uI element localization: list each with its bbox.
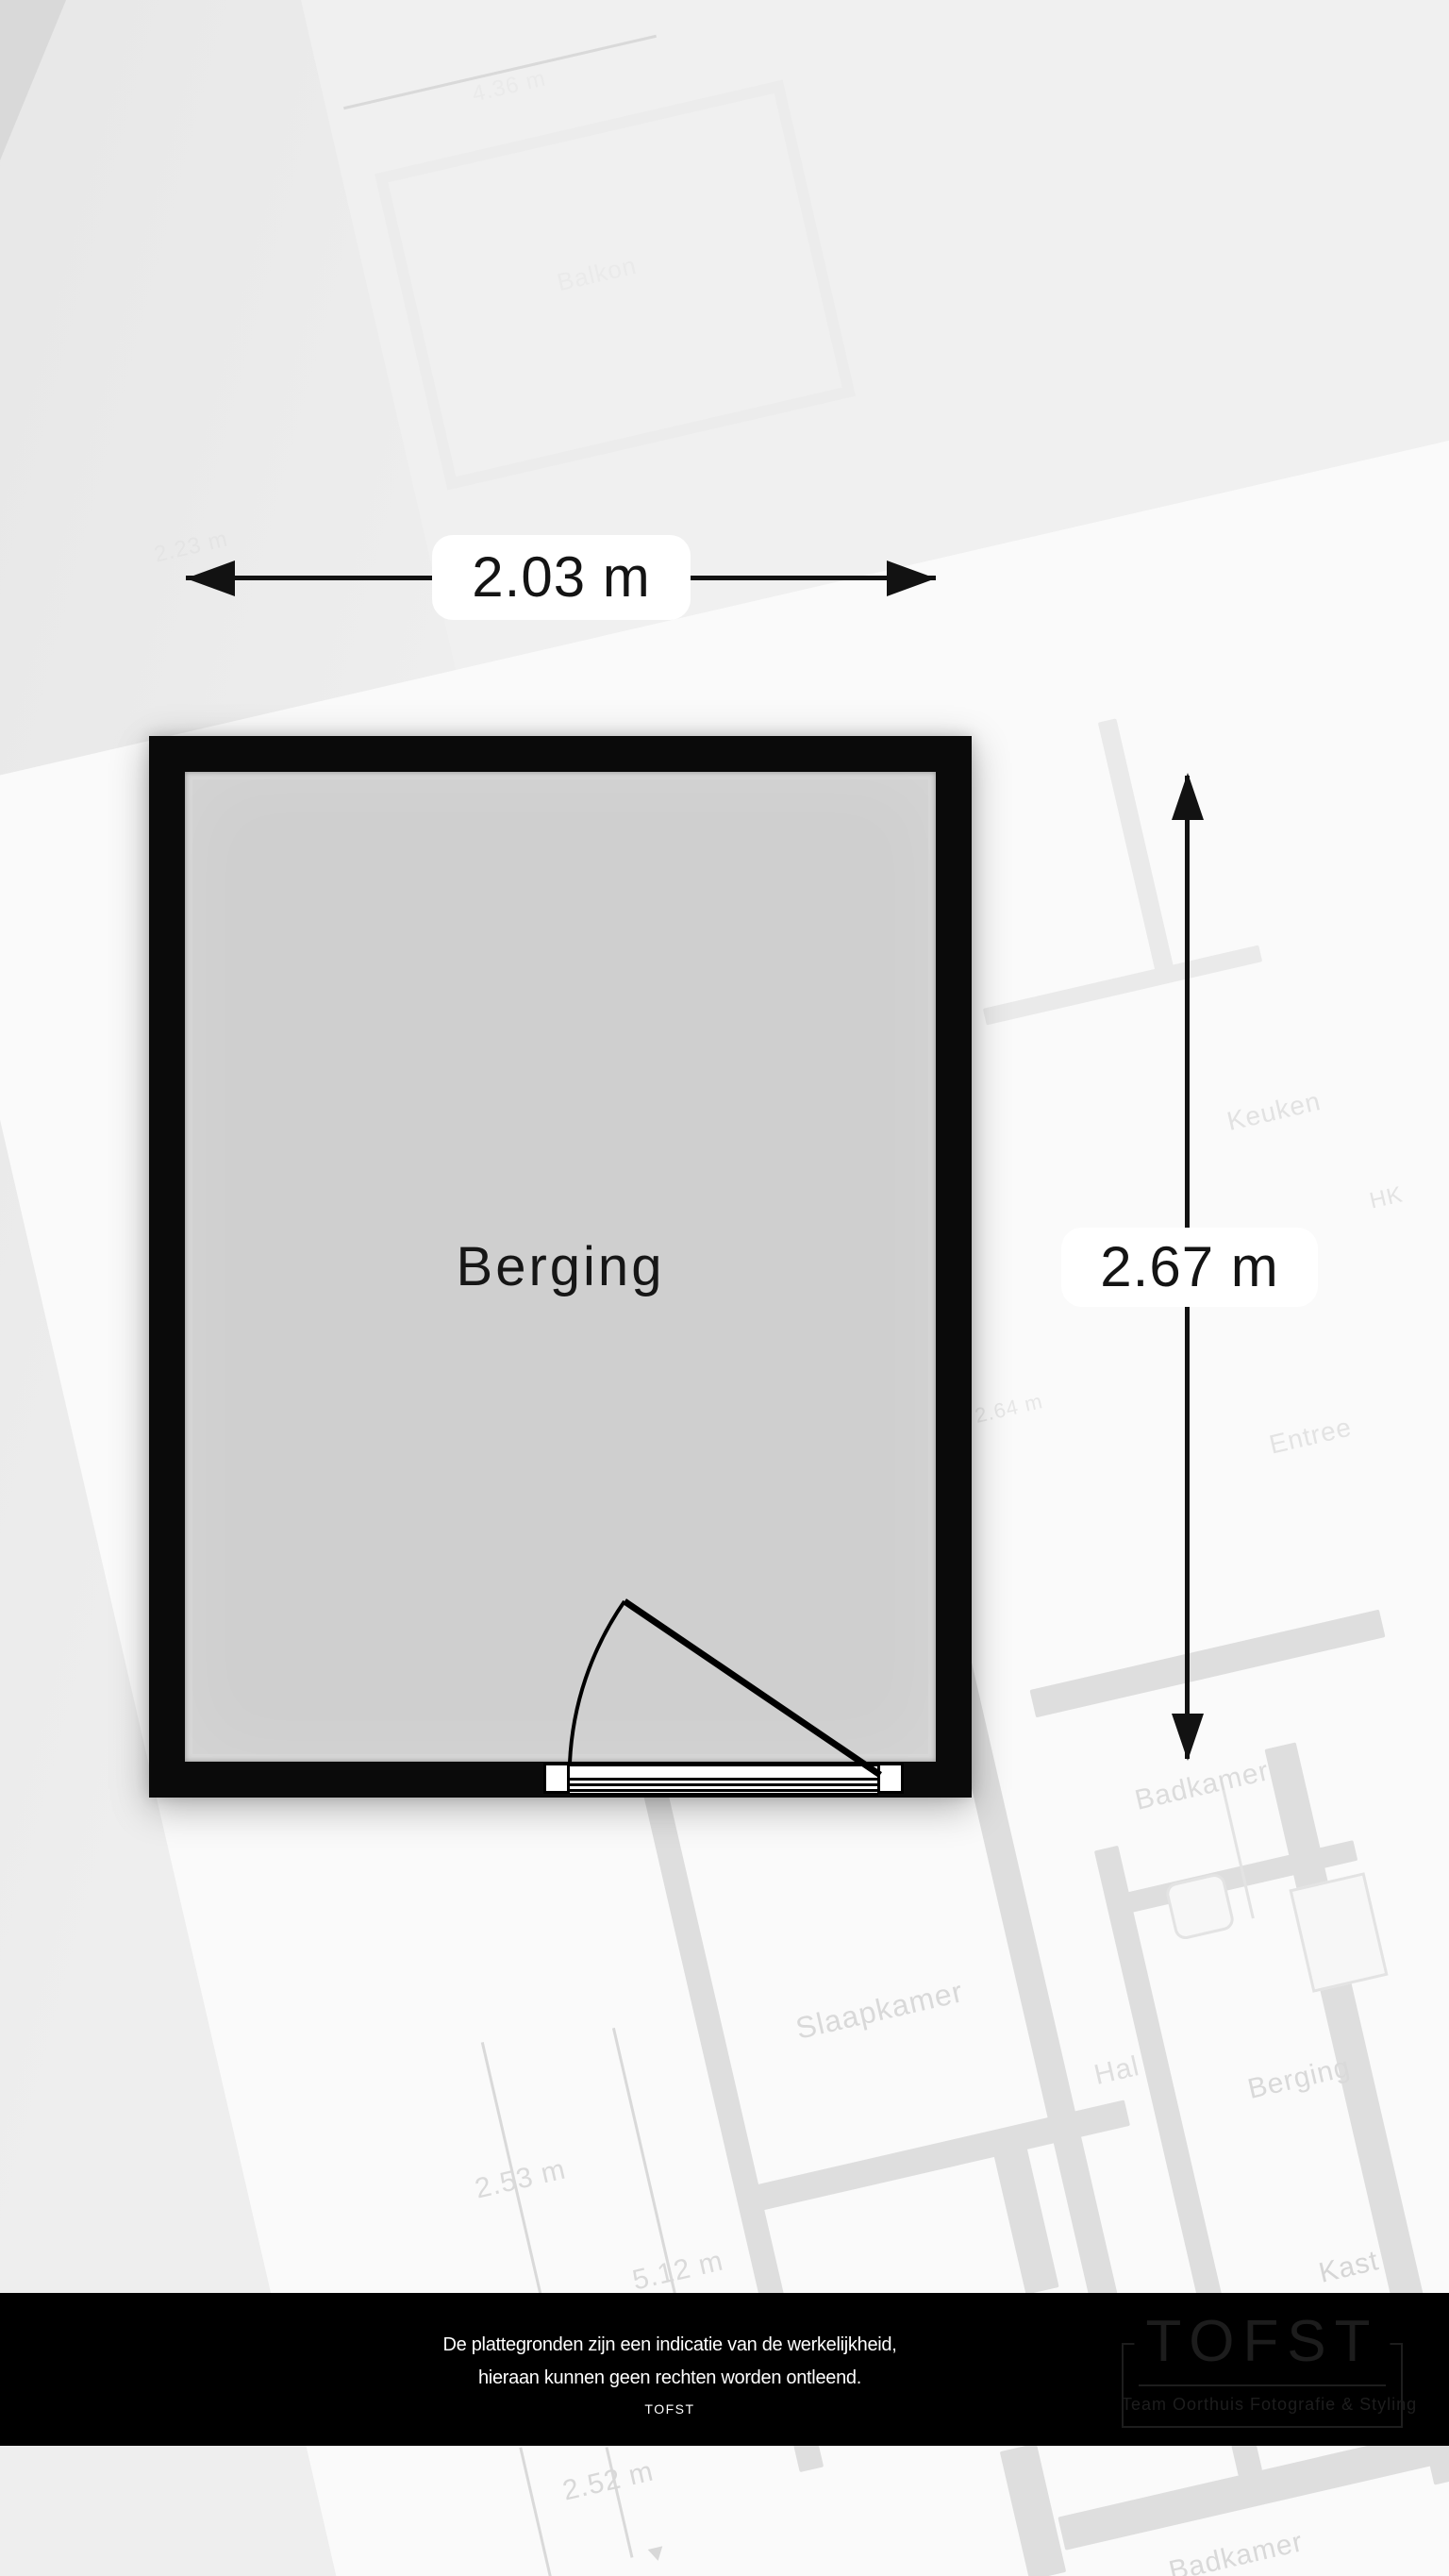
arrow-right-icon [887,560,936,596]
arrow-up-icon [1172,773,1204,820]
door-swing-icon [524,1562,920,1798]
arrow-left-icon [186,560,235,596]
tofst-logo-subtitle: Team Oorthuis Fotografie & Styling [1122,2395,1403,2415]
room-name-label: Berging [457,1235,665,1298]
tofst-logo: TOFST Team Oorthuis Fotografie & Styling [1122,2308,1403,2428]
tofst-logo-separator [1139,2384,1386,2386]
background-corner-wedge [0,0,66,160]
height-dimension-label: 2.67 m [1061,1228,1318,1307]
width-dimension-label: 2.03 m [432,535,691,620]
footer-bar: De plattegronden zijn een indicatie van … [0,2293,1449,2446]
arrow-down-icon [1172,1714,1204,1761]
tofst-logo-title: TOFST [1134,2308,1390,2375]
floorplan-canvas: Balkon Keuken HK Entree Badkamer Slaapka… [0,0,1449,2576]
